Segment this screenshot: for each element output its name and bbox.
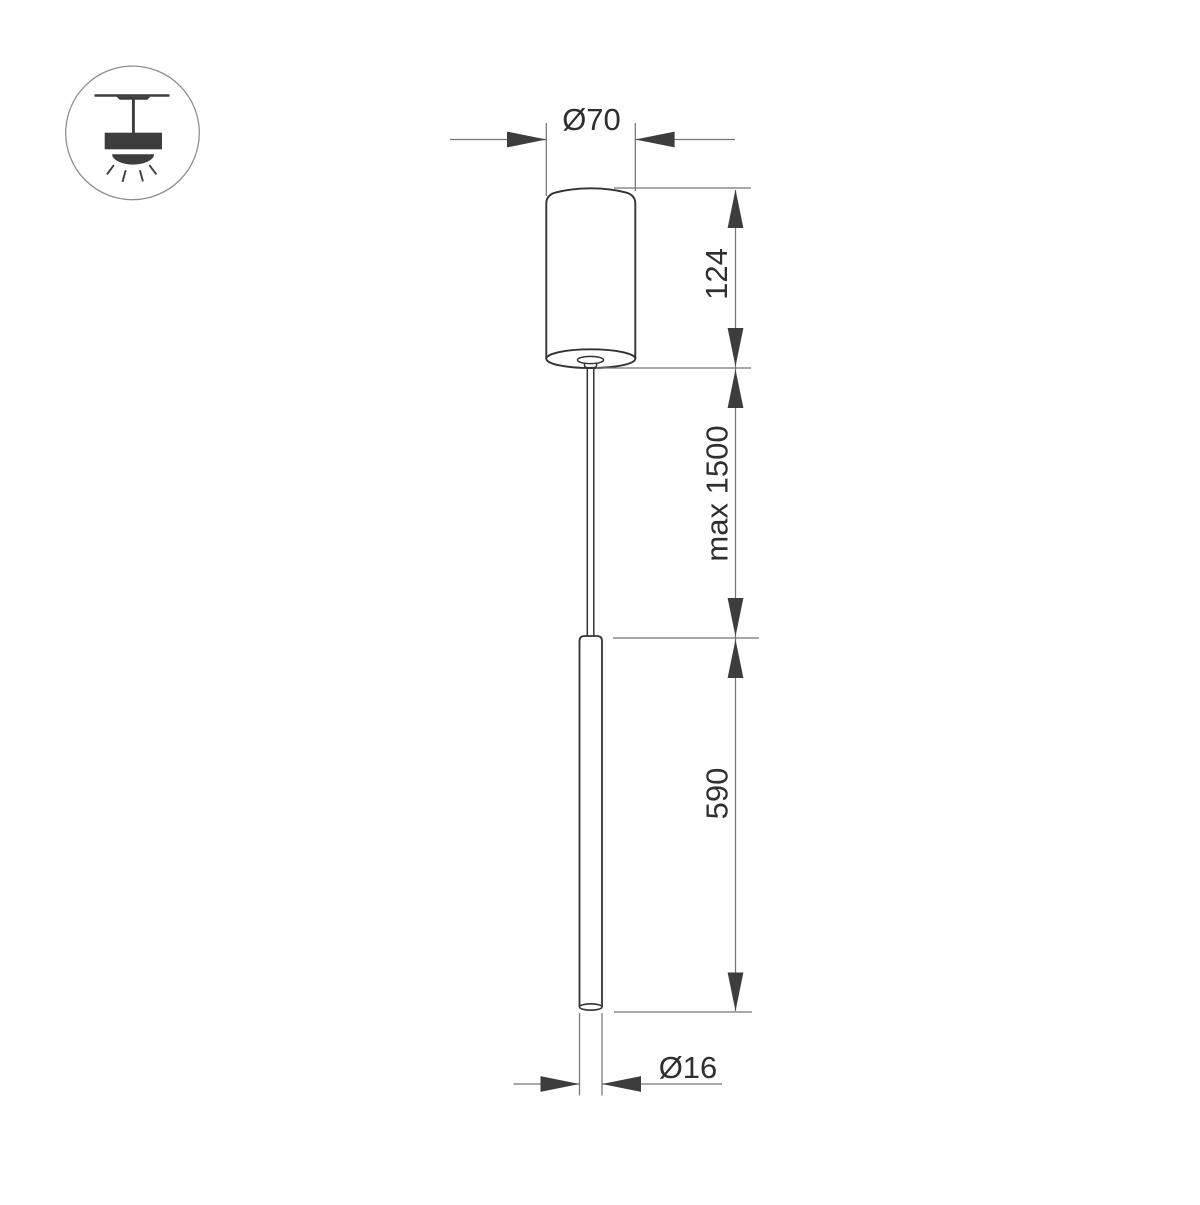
svg-text:max 1500: max 1500 (700, 425, 735, 561)
svg-text:Ø16: Ø16 (659, 1050, 718, 1085)
svg-text:124: 124 (699, 248, 734, 300)
svg-text:Ø70: Ø70 (562, 102, 621, 137)
svg-text:590: 590 (700, 768, 735, 820)
